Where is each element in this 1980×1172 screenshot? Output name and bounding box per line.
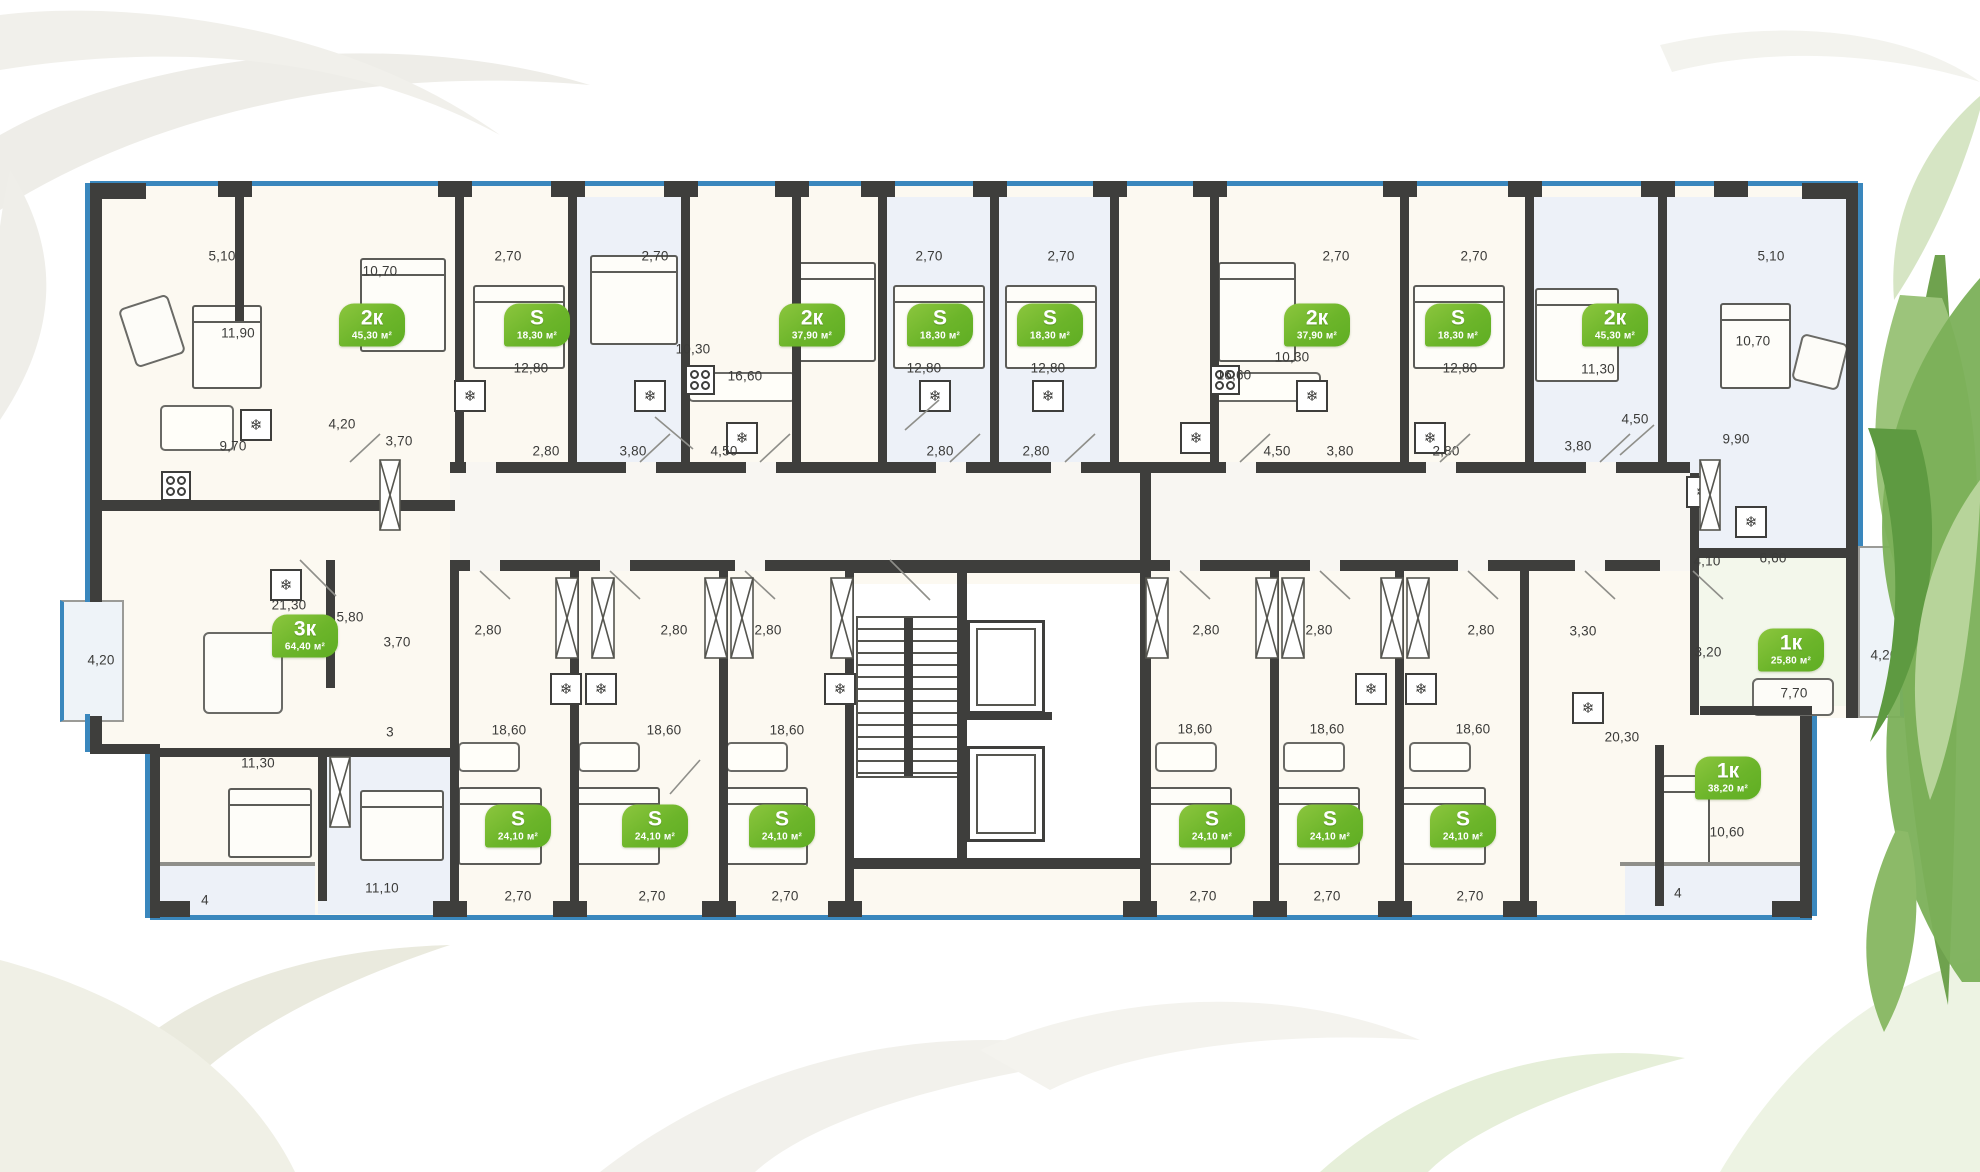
dimension-label: 2,70 <box>1047 249 1074 264</box>
fridge-icon: ❄ <box>240 409 272 441</box>
apartment-area: 64,40 м² <box>282 642 328 653</box>
dimension-label: 18,60 <box>1456 722 1491 737</box>
apartment-area: 24,10 м² <box>1440 832 1486 843</box>
dimension-label: 2,70 <box>641 249 668 264</box>
dimension-label: 2,80 <box>754 623 781 638</box>
dimension-label: 4 <box>1674 886 1682 901</box>
elevator <box>967 620 1045 714</box>
dimension-label: 2,80 <box>1022 444 1049 459</box>
table <box>1409 742 1471 772</box>
wall <box>746 462 776 473</box>
apartment-type: S <box>632 808 678 830</box>
wall <box>1714 181 1748 197</box>
apartment-type: 1к <box>1705 760 1751 782</box>
fridge-icon: ❄ <box>550 673 582 705</box>
apartment-area: 24,10 м² <box>1189 832 1235 843</box>
table <box>726 742 788 772</box>
apartment-badge[interactable]: 3к64,40 м² <box>272 614 338 657</box>
wall <box>1458 560 1488 571</box>
wall <box>455 197 464 462</box>
apartment-badge[interactable]: 2к37,90 м² <box>779 303 845 346</box>
slab-cutout <box>90 754 148 918</box>
dimension-label: 18,60 <box>1310 722 1345 737</box>
dimension-label: 11,90 <box>221 326 255 341</box>
wall <box>1270 571 1279 901</box>
wall <box>1508 181 1542 197</box>
fridge-icon: ❄ <box>1180 422 1212 454</box>
wall <box>1395 571 1404 901</box>
dimension-label: 18,60 <box>647 723 682 738</box>
apartment-area: 38,20 м² <box>1705 784 1751 795</box>
apartment-type: 2к <box>1592 307 1638 329</box>
wall <box>553 901 587 917</box>
fridge-icon: ❄ <box>634 380 666 412</box>
wall <box>218 181 252 197</box>
wall <box>878 197 887 462</box>
wall <box>1426 462 1456 473</box>
wall <box>990 197 999 462</box>
dimension-label: 18,60 <box>492 723 527 738</box>
wall <box>150 748 450 757</box>
fridge-icon: ❄ <box>1355 673 1387 705</box>
wall <box>570 571 579 901</box>
apartment-area: 18,30 м² <box>514 331 560 342</box>
fridge-icon: ❄ <box>1296 380 1328 412</box>
apartment-area: 24,10 м² <box>1307 832 1353 843</box>
table <box>458 742 520 772</box>
fridge-icon: ❄ <box>1572 692 1604 724</box>
dimension-label: 10,70 <box>363 264 398 279</box>
dimension-label: 20,30 <box>1605 730 1640 745</box>
bed <box>192 305 262 389</box>
apartment-type: S <box>495 808 541 830</box>
wall <box>681 197 690 462</box>
wall <box>1641 181 1675 197</box>
wall <box>845 571 854 901</box>
dimension-label: 9,90 <box>1722 432 1749 447</box>
apartment-badge[interactable]: S24,10 м² <box>485 804 551 847</box>
wall <box>1660 560 1690 571</box>
dimension-label: 7,70 <box>1780 686 1807 701</box>
wall <box>1226 462 1256 473</box>
dimension-label: 12,80 <box>514 361 549 376</box>
dimension-label: 10,30 <box>1275 350 1310 365</box>
dimension-label: 5,80 <box>336 610 363 625</box>
dimension-label: 12,80 <box>1443 361 1478 376</box>
dimension-label: 2,70 <box>494 249 521 264</box>
apartment-badge[interactable]: 1к38,20 м² <box>1695 756 1761 799</box>
dimension-label: 2,70 <box>771 889 798 904</box>
wall <box>90 744 156 754</box>
wall <box>433 901 467 917</box>
wall <box>160 862 315 866</box>
dimension-label: 4,50 <box>1621 412 1648 427</box>
dimension-label: 3,20 <box>1694 645 1721 660</box>
wall <box>470 560 500 571</box>
dimension-label: 11,30 <box>241 756 275 771</box>
fridge-icon: ❄ <box>824 673 856 705</box>
dimension-label: 2,70 <box>1460 249 1487 264</box>
dimension-label: 10,70 <box>1736 334 1771 349</box>
dimension-label: 4,20 <box>87 653 114 668</box>
dimension-label: 6,60 <box>1759 551 1786 566</box>
wall <box>1690 558 1699 715</box>
wall <box>1525 197 1534 462</box>
wall <box>702 901 736 917</box>
dimension-label: 2,70 <box>915 249 942 264</box>
apartment-area: 24,10 м² <box>632 832 678 843</box>
wall <box>150 744 160 918</box>
dimension-label: 2,80 <box>532 444 559 459</box>
wall <box>1586 462 1616 473</box>
wall <box>845 560 1151 573</box>
wall <box>235 197 244 321</box>
dimension-label: 2,70 <box>1313 889 1340 904</box>
wall <box>450 571 459 901</box>
elevator <box>967 746 1045 842</box>
dimension-label: 2,80 <box>1467 623 1494 638</box>
dimension-label: 18,60 <box>1178 722 1213 737</box>
dimension-label: 10,60 <box>1710 825 1745 840</box>
wall <box>936 462 966 473</box>
wall <box>1110 197 1119 462</box>
apartment-type: S <box>917 307 963 329</box>
dimension-label: 5,10 <box>1757 249 1784 264</box>
apartment-badge[interactable]: S24,10 м² <box>1430 804 1496 847</box>
dimension-label: 2,80 <box>1432 444 1459 459</box>
dimension-label: 4 <box>201 893 209 908</box>
apartment-badge[interactable]: S18,30 м² <box>907 303 973 346</box>
apartment-badge[interactable]: 2к45,30 м² <box>339 303 405 346</box>
bed <box>228 788 312 858</box>
apartment-type: 2к <box>789 307 835 329</box>
apartment-type: S <box>514 307 560 329</box>
dimension-label: 3,80 <box>1326 444 1353 459</box>
wall <box>1655 745 1664 906</box>
stove-icon <box>685 365 715 395</box>
dimension-label: 2,80 <box>926 444 953 459</box>
bed <box>590 255 678 345</box>
wall <box>1093 181 1127 197</box>
dimension-label: 2,80 <box>1305 623 1332 638</box>
dimension-label: 11,30 <box>1581 362 1615 377</box>
wall <box>150 901 190 917</box>
apartment-badge[interactable]: S24,10 м² <box>749 804 815 847</box>
apartment-area: 18,30 м² <box>917 331 963 342</box>
wall <box>1140 473 1151 906</box>
apartment-badge[interactable]: S18,30 м² <box>1425 303 1491 346</box>
dimension-label: 4,50 <box>710 444 737 459</box>
fridge-icon: ❄ <box>919 380 951 412</box>
apartment-area: 24,10 м² <box>759 832 805 843</box>
apartment-badge[interactable]: 2к37,90 м² <box>1284 303 1350 346</box>
apartment-badge[interactable]: S18,30 м² <box>1017 303 1083 346</box>
wall <box>1658 197 1667 462</box>
wall <box>1253 901 1287 917</box>
wall <box>1772 901 1812 917</box>
apartment-type: S <box>1435 307 1481 329</box>
apartment-type: S <box>1307 808 1353 830</box>
apartment-area: 45,30 м² <box>1592 331 1638 342</box>
wall <box>1575 560 1605 571</box>
dimension-label: 3,30 <box>1569 624 1596 639</box>
dimension-label: 9,70 <box>219 439 246 454</box>
fridge-icon: ❄ <box>585 673 617 705</box>
dimension-label: 16,60 <box>728 369 763 384</box>
wall <box>719 571 728 901</box>
table <box>1283 742 1345 772</box>
corridor <box>450 473 1690 560</box>
table <box>578 742 640 772</box>
dimension-label: 2,80 <box>1192 623 1219 638</box>
apartment-type: 2к <box>1294 307 1340 329</box>
dimension-label: 3 <box>386 725 394 740</box>
floor-plan: 2к45,30 м²S18,30 м²2к37,90 м²S18,30 м²S1… <box>0 0 1980 1172</box>
wall <box>90 187 102 602</box>
dimension-label: 10,30 <box>676 342 711 357</box>
apartment-type: S <box>1189 808 1235 830</box>
apartment-area: 45,30 м² <box>349 331 395 342</box>
stove-icon <box>161 471 191 501</box>
wall <box>957 573 967 869</box>
apartment-badge[interactable]: 1к25,80 м² <box>1758 628 1824 671</box>
dimension-label: 2,70 <box>1322 249 1349 264</box>
fridge-icon: ❄ <box>270 569 302 601</box>
dimension-label: 3,80 <box>619 444 646 459</box>
apartment-area: 37,90 м² <box>789 331 835 342</box>
wall <box>775 181 809 197</box>
apartment-type: 3к <box>282 618 328 640</box>
wall <box>1846 187 1858 718</box>
dimension-label: 2,70 <box>1189 889 1216 904</box>
wall <box>1170 560 1200 571</box>
wall <box>1620 862 1800 866</box>
dimension-label: 18,60 <box>770 723 805 738</box>
apartment-type: S <box>1027 307 1073 329</box>
dimension-label: 11,10 <box>365 881 399 896</box>
dimension-label: 21,30 <box>272 598 307 613</box>
wall <box>664 181 698 197</box>
wall <box>1700 706 1812 715</box>
apartment-type: S <box>759 808 805 830</box>
window-glazing <box>1858 183 1863 546</box>
window-glazing <box>150 915 1812 920</box>
bed <box>360 790 444 861</box>
dimension-label: 4,10 <box>1693 554 1720 569</box>
dimension-label: 2,70 <box>1456 889 1483 904</box>
apartment-badge[interactable]: S24,10 м² <box>1179 804 1245 847</box>
wall <box>438 181 472 197</box>
apartment-badge[interactable]: 2к45,30 м² <box>1582 303 1648 346</box>
dimension-label: 4,50 <box>1263 444 1290 459</box>
wall <box>962 712 1052 720</box>
apartment-type: 2к <box>349 307 395 329</box>
wall <box>626 462 656 473</box>
window-glazing <box>1812 716 1817 916</box>
wall <box>845 858 1151 869</box>
apartment-area: 24,10 м² <box>495 832 541 843</box>
wall <box>1051 462 1081 473</box>
wall <box>973 181 1007 197</box>
apartment-badge[interactable]: S24,10 м² <box>1297 804 1363 847</box>
wall <box>861 181 895 197</box>
wall <box>828 901 862 917</box>
apartment-type: 1к <box>1768 632 1814 654</box>
apartment-area: 18,30 м² <box>1027 331 1073 342</box>
dimension-label: 12,80 <box>907 361 942 376</box>
wall <box>1800 716 1812 918</box>
slab-cutout <box>1812 718 1858 918</box>
dimension-label: 2,70 <box>638 889 665 904</box>
dimension-label: 2,80 <box>474 623 501 638</box>
staircase <box>856 616 960 778</box>
apartment-area: 25,80 м² <box>1768 656 1814 667</box>
dimension-label: 3,70 <box>385 434 412 449</box>
wall <box>1310 560 1340 571</box>
wall <box>735 560 765 571</box>
fridge-icon: ❄ <box>1032 380 1064 412</box>
sofa <box>203 632 283 714</box>
wall <box>600 560 630 571</box>
wall <box>1400 197 1409 462</box>
wall <box>1520 571 1529 901</box>
dimension-label: 3,80 <box>1564 439 1591 454</box>
balcony <box>1858 546 1904 718</box>
dimension-label: 4,20 <box>328 417 355 432</box>
wall <box>318 757 327 901</box>
apartment-area: 18,30 м² <box>1435 331 1481 342</box>
dimension-label: 3,70 <box>383 635 410 650</box>
fridge-icon: ❄ <box>1735 506 1767 538</box>
wall <box>1378 901 1412 917</box>
dimension-label: 2,80 <box>660 623 687 638</box>
apartment-area: 37,90 м² <box>1294 331 1340 342</box>
dimension-label: 5,10 <box>208 249 235 264</box>
fridge-icon: ❄ <box>1405 673 1437 705</box>
apartment-badge[interactable]: S24,10 м² <box>622 804 688 847</box>
dimension-label: 4,20 <box>1870 648 1897 663</box>
fridge-icon: ❄ <box>454 380 486 412</box>
fridge-icon: ❄ <box>1686 476 1718 508</box>
apartment-type: S <box>1440 808 1486 830</box>
dimension-label: 12,80 <box>1031 361 1066 376</box>
wall <box>1193 181 1227 197</box>
wall <box>1503 901 1537 917</box>
wall <box>90 500 455 511</box>
dimension-label: 2,70 <box>504 889 531 904</box>
wall <box>551 181 585 197</box>
wall <box>1383 181 1417 197</box>
apartment-badge[interactable]: S18,30 м² <box>504 303 570 346</box>
table <box>1155 742 1217 772</box>
wall <box>466 462 496 473</box>
dimension-label: 16,60 <box>1217 368 1252 383</box>
